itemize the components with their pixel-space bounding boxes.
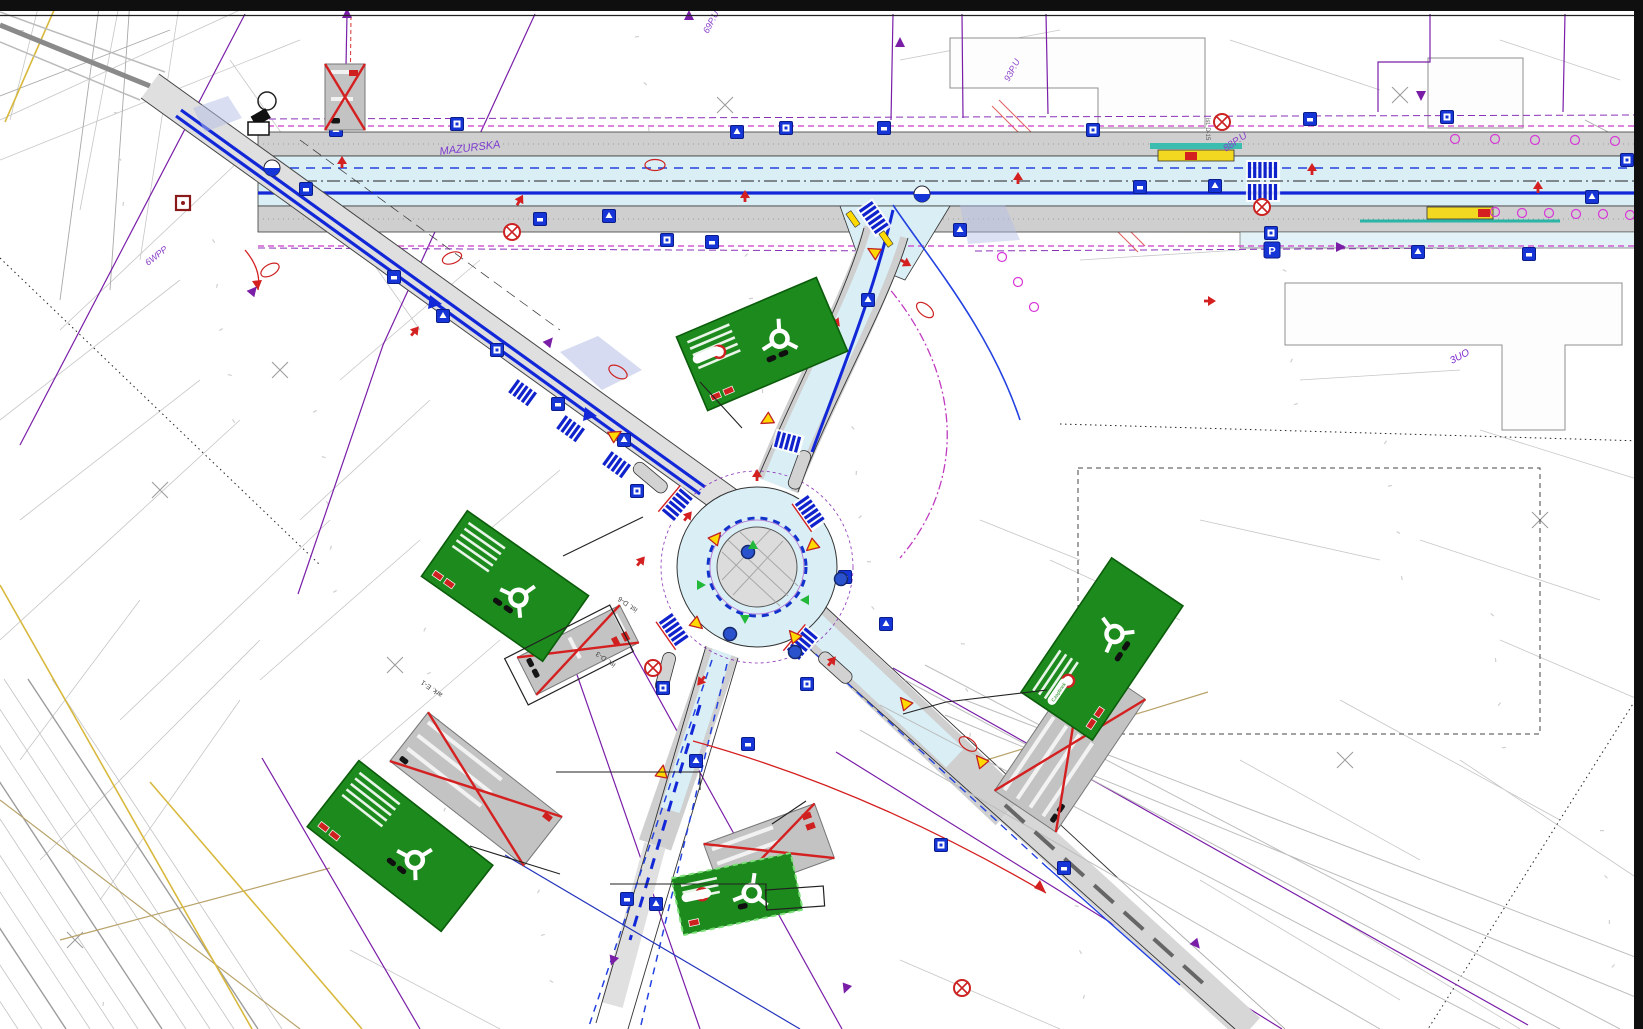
tree-icon <box>1014 278 1023 287</box>
crossed-out-sign-icon <box>1214 114 1230 130</box>
blue-info-sign-icon <box>1209 180 1222 193</box>
blue-info-sign-icon <box>491 344 504 357</box>
blue-info-sign-icon <box>954 224 967 237</box>
blue-info-sign-icon <box>300 183 313 196</box>
blue-info-sign-icon <box>1412 246 1425 259</box>
traffic-plan-drawing: P Czaplinek MAZURSKA88P.U69P.U93P.U6WPP3… <box>0 0 1643 1029</box>
survey-cross <box>1392 87 1408 103</box>
blue-info-sign-icon <box>731 126 744 139</box>
blue-info-sign-icon <box>1586 191 1599 204</box>
blue-info-sign-icon <box>552 398 565 411</box>
survey-cross <box>387 657 403 673</box>
blue-info-sign-icon <box>451 118 464 131</box>
crosswalk-marking <box>656 610 692 649</box>
survey-cross <box>717 97 733 113</box>
red-oval-markup <box>259 260 282 280</box>
blue-info-sign-icon <box>661 234 674 247</box>
blue-info-sign-icon <box>657 682 670 695</box>
blue-info-sign-icon <box>1523 248 1536 261</box>
blue-info-sign-icon <box>388 271 401 284</box>
tree-icon <box>1030 303 1039 312</box>
blue-info-sign-icon <box>650 898 663 911</box>
blue-info-sign-icon <box>618 434 631 447</box>
blue-info-sign-icon <box>1441 111 1454 124</box>
parking-sign-icon: P <box>1264 242 1280 258</box>
sign-back <box>248 122 269 135</box>
blue-info-sign-icon <box>690 755 703 768</box>
roundabout-ball-icon <box>914 186 930 202</box>
crosswalk-marking <box>1246 160 1280 180</box>
blue-info-sign-icon <box>1134 181 1147 194</box>
blue-info-sign-icon <box>935 839 948 852</box>
crosswalk-marking <box>553 412 588 445</box>
crossed-out-sign-icon <box>504 224 520 240</box>
boundary-triangle-icon <box>543 334 557 348</box>
map-label: ark. E-1 <box>420 678 444 698</box>
green-direction-sign-board: Czaplinek <box>1021 558 1183 740</box>
southeast-exit-road <box>785 597 1643 1029</box>
blue-info-sign-icon <box>706 236 719 249</box>
red-arrow-marker <box>407 323 422 339</box>
roundabout <box>631 449 855 693</box>
blue-info-sign-icon <box>780 122 793 135</box>
building-outline <box>950 38 1205 128</box>
blue-info-sign-icon <box>1087 124 1100 137</box>
tree-icon <box>998 253 1007 262</box>
blue-info-sign-icon <box>1304 113 1317 126</box>
blue-info-sign-icon <box>878 122 891 135</box>
utility-circle <box>258 92 276 110</box>
blue-info-sign-icon <box>437 310 450 323</box>
red-oval-markup <box>914 299 936 320</box>
blue-info-sign-icon <box>534 213 547 226</box>
survey-cross <box>272 362 288 378</box>
roundabout-ball-icon <box>264 160 280 176</box>
crossed-out-sign-icon <box>645 660 661 676</box>
blue-info-sign-icon <box>1058 862 1071 875</box>
survey-cross <box>152 482 168 498</box>
map-label: 3UO <box>1448 347 1472 366</box>
svg-text:P: P <box>1268 246 1275 258</box>
keep-right-dot-icon <box>789 646 802 659</box>
plan-sheet: P Czaplinek MAZURSKA88P.U69P.U93P.U6WPP3… <box>0 0 1643 1029</box>
blue-info-sign-icon <box>631 485 644 498</box>
survey-cross <box>1337 752 1353 768</box>
red-oval-markup <box>441 249 464 266</box>
crossed-out-sign-icon <box>954 980 970 996</box>
crosswalk-marking <box>599 448 634 481</box>
red-arrow-marker <box>633 553 648 569</box>
blue-info-sign-icon <box>621 893 634 906</box>
blue-info-sign-icon <box>1265 227 1278 240</box>
blue-info-sign-icon <box>880 618 893 631</box>
blue-info-sign-icon <box>801 678 814 691</box>
crossed-out-sign-icon <box>1254 199 1270 215</box>
boundary-triangle-icon <box>839 983 852 996</box>
map-label: 69P.U <box>701 9 721 35</box>
blue-info-sign-icon <box>742 738 755 751</box>
blue-info-sign-icon <box>862 294 875 307</box>
blue-info-sign-icon <box>1621 154 1634 167</box>
red-arrow-marker <box>1204 296 1216 306</box>
map-label: ist. D-15 <box>1204 118 1210 141</box>
keep-right-dot-icon <box>835 573 848 586</box>
boundary-triangle-icon <box>895 37 905 47</box>
blue-info-sign-icon <box>603 210 616 223</box>
yield-triangle-icon <box>758 412 774 428</box>
keep-right-dot-icon <box>724 628 737 641</box>
removed-sign-board <box>325 64 365 130</box>
boundary-triangle-icon <box>1416 91 1426 101</box>
